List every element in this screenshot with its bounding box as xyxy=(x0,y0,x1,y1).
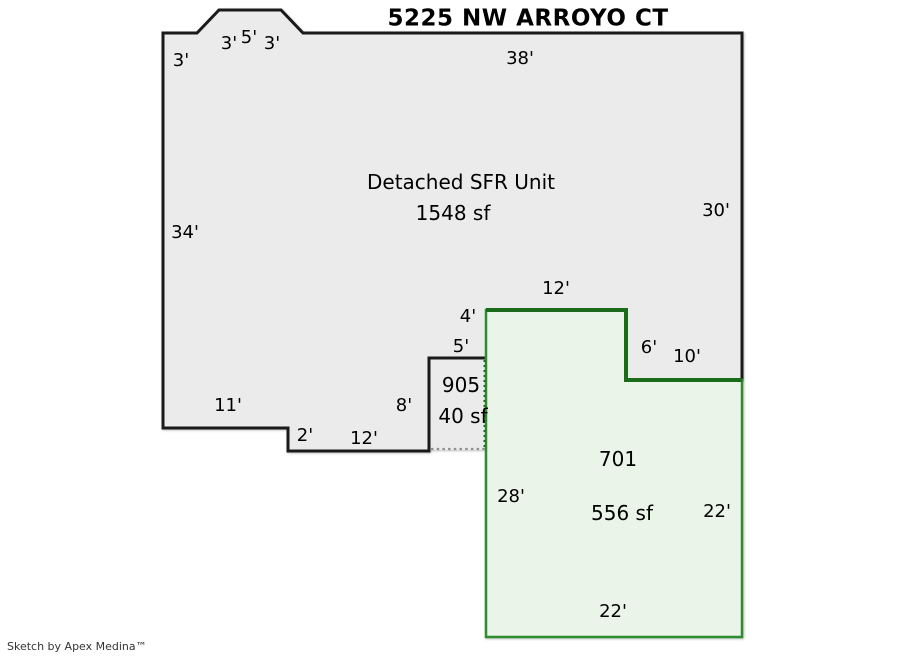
dim-adu-top: 12' xyxy=(542,280,570,298)
dim-bump-top: 5' xyxy=(241,29,257,47)
adu-id: 701 xyxy=(599,449,637,469)
page-title: 5225 NW ARROYO CT xyxy=(387,8,668,31)
dim-inset-left: 4' xyxy=(460,308,476,326)
property-sketch: 5225 NW ARROYO CT Sketch by Apex Medina™… xyxy=(0,0,900,660)
dim-left: 34' xyxy=(171,224,199,242)
dim-bump-right: 3' xyxy=(264,35,280,53)
dim-bottom-left: 11' xyxy=(214,397,242,415)
porch-id: 905 xyxy=(442,375,480,395)
dim-top: 38' xyxy=(506,50,534,68)
dim-bump-left: 3' xyxy=(221,35,237,53)
dim-step-down: 2' xyxy=(297,427,313,445)
adu-area: 556 sf xyxy=(591,503,653,523)
dim-adu-left: 28' xyxy=(497,488,525,506)
dim-bottom-right: 10' xyxy=(673,348,701,366)
main-unit-area: 1548 sf xyxy=(416,203,491,223)
dim-adu-right: 22' xyxy=(703,503,731,521)
main-unit-name: Detached SFR Unit xyxy=(367,172,555,192)
sketch-credit: Sketch by Apex Medina™ xyxy=(7,641,147,652)
dim-left-top: 3' xyxy=(173,52,189,70)
dim-right: 30' xyxy=(702,202,730,220)
dim-notch-side: 8' xyxy=(396,397,412,415)
dim-porch-top: 5' xyxy=(453,338,469,356)
porch-area: 40 sf xyxy=(438,406,487,426)
dim-inset-right: 6' xyxy=(641,339,657,357)
sketch-drawing xyxy=(0,0,900,660)
dim-bottom-mid: 12' xyxy=(350,430,378,448)
dim-adu-bottom: 22' xyxy=(599,603,627,621)
